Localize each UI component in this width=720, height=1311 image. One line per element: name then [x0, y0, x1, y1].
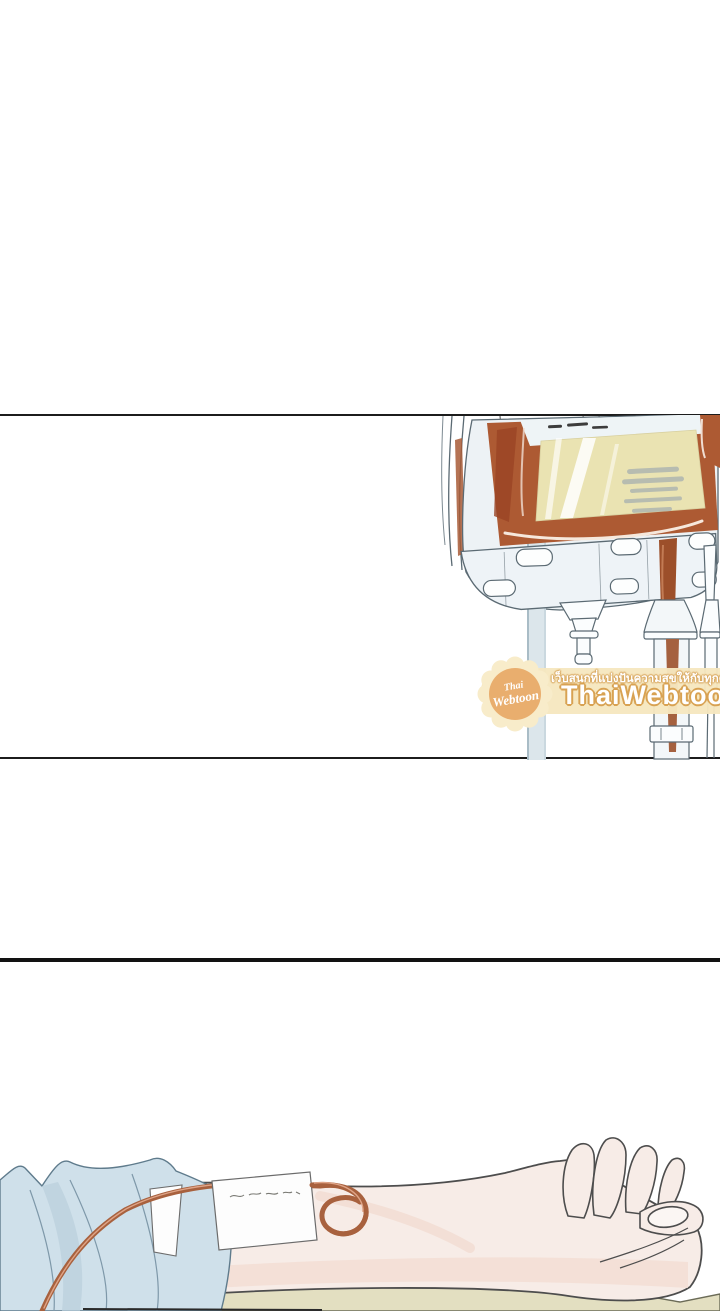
bag-label [536, 430, 705, 521]
thaiwebtoon-badge: Thai Webtoon [477, 656, 553, 732]
webtoon-page: Thai Webtoon เว็บสนุกที่แบ่งปันความสุขให… [0, 0, 720, 1311]
bottom-edge-line [83, 1309, 322, 1310]
bag-port-capped [560, 600, 606, 664]
thaiwebtoon-watermark: Thai Webtoon เว็บสนุกที่แบ่งปันความสุขให… [481, 666, 720, 714]
sleeve-fabric [0, 1158, 231, 1311]
arm-illustration [0, 1096, 720, 1311]
watermark-sitename: ThaiWebtoon [561, 680, 720, 711]
panel-divider-thick [0, 958, 720, 962]
medical-tape-large [212, 1172, 317, 1250]
blood-bag [487, 415, 718, 546]
